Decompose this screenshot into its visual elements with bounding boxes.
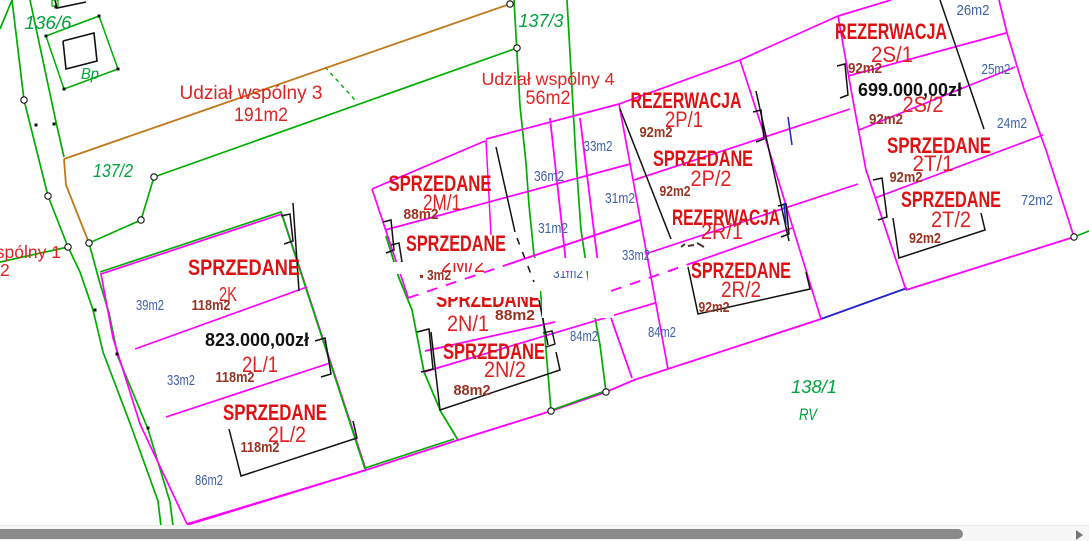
svg-text:2N/2: 2N/2 xyxy=(484,357,526,382)
svg-text:118m2: 118m2 xyxy=(216,369,255,386)
svg-text:191m2: 191m2 xyxy=(234,105,288,126)
svg-text:56m2: 56m2 xyxy=(526,88,571,109)
svg-text:39m2: 39m2 xyxy=(136,297,164,314)
svg-text:33m2: 33m2 xyxy=(584,138,613,155)
svg-text:2T/2: 2T/2 xyxy=(931,207,971,232)
svg-text:2: 2 xyxy=(0,260,10,280)
svg-text:31m2: 31m2 xyxy=(538,220,568,237)
svg-text:88m2: 88m2 xyxy=(495,307,535,324)
svg-text:36m2: 36m2 xyxy=(534,168,564,185)
svg-text:3m2: 3m2 xyxy=(427,267,451,284)
svg-text:Udział wspólny 4: Udział wspólny 4 xyxy=(482,69,615,89)
svg-text:REZERWACJA: REZERWACJA xyxy=(835,19,947,44)
svg-text:92m2: 92m2 xyxy=(848,60,882,77)
svg-text:33m2: 33m2 xyxy=(622,247,650,264)
svg-text:RV: RV xyxy=(799,405,818,424)
svg-text:24m2: 24m2 xyxy=(997,115,1027,132)
svg-text:92m2: 92m2 xyxy=(890,169,923,186)
svg-text:118m2: 118m2 xyxy=(192,297,231,314)
svg-text:137/2: 137/2 xyxy=(93,161,133,181)
svg-text:84m2: 84m2 xyxy=(648,324,676,341)
svg-text:92m2: 92m2 xyxy=(869,111,903,128)
svg-text:86m2: 86m2 xyxy=(195,472,223,489)
svg-text:SPRZEDANE: SPRZEDANE xyxy=(188,255,300,280)
svg-text:92m2: 92m2 xyxy=(660,183,691,200)
svg-text:2P/2: 2P/2 xyxy=(691,166,732,191)
svg-text:26m2: 26m2 xyxy=(957,2,990,19)
svg-text:Bp: Bp xyxy=(81,66,99,83)
svg-text:88m2: 88m2 xyxy=(454,382,491,399)
svg-text:Udział wspólny 3: Udział wspólny 3 xyxy=(180,83,323,104)
svg-text:137/3: 137/3 xyxy=(519,11,564,31)
svg-text:88m2: 88m2 xyxy=(404,206,439,223)
svg-text:823.000,00zł: 823.000,00zł xyxy=(205,330,309,350)
svg-text:72m2: 72m2 xyxy=(1021,192,1053,209)
svg-text:33m2: 33m2 xyxy=(167,372,195,389)
svg-text:2N/1: 2N/1 xyxy=(447,311,489,336)
svg-text:92m2: 92m2 xyxy=(909,230,941,247)
svg-text:92m2: 92m2 xyxy=(640,124,673,141)
svg-text:84m2: 84m2 xyxy=(570,328,598,345)
svg-text:wspólny 1: wspólny 1 xyxy=(0,242,61,262)
svg-text:25m2: 25m2 xyxy=(982,61,1011,78)
svg-text:138/1: 138/1 xyxy=(791,377,837,397)
svg-text:118m2: 118m2 xyxy=(241,439,280,456)
svg-text:2R/1: 2R/1 xyxy=(701,219,743,244)
svg-text:31m2: 31m2 xyxy=(605,190,635,207)
svg-text:136/6: 136/6 xyxy=(25,13,73,33)
svg-text:92m2: 92m2 xyxy=(699,299,730,316)
svg-text:699.000,00zł: 699.000,00zł xyxy=(858,80,962,100)
